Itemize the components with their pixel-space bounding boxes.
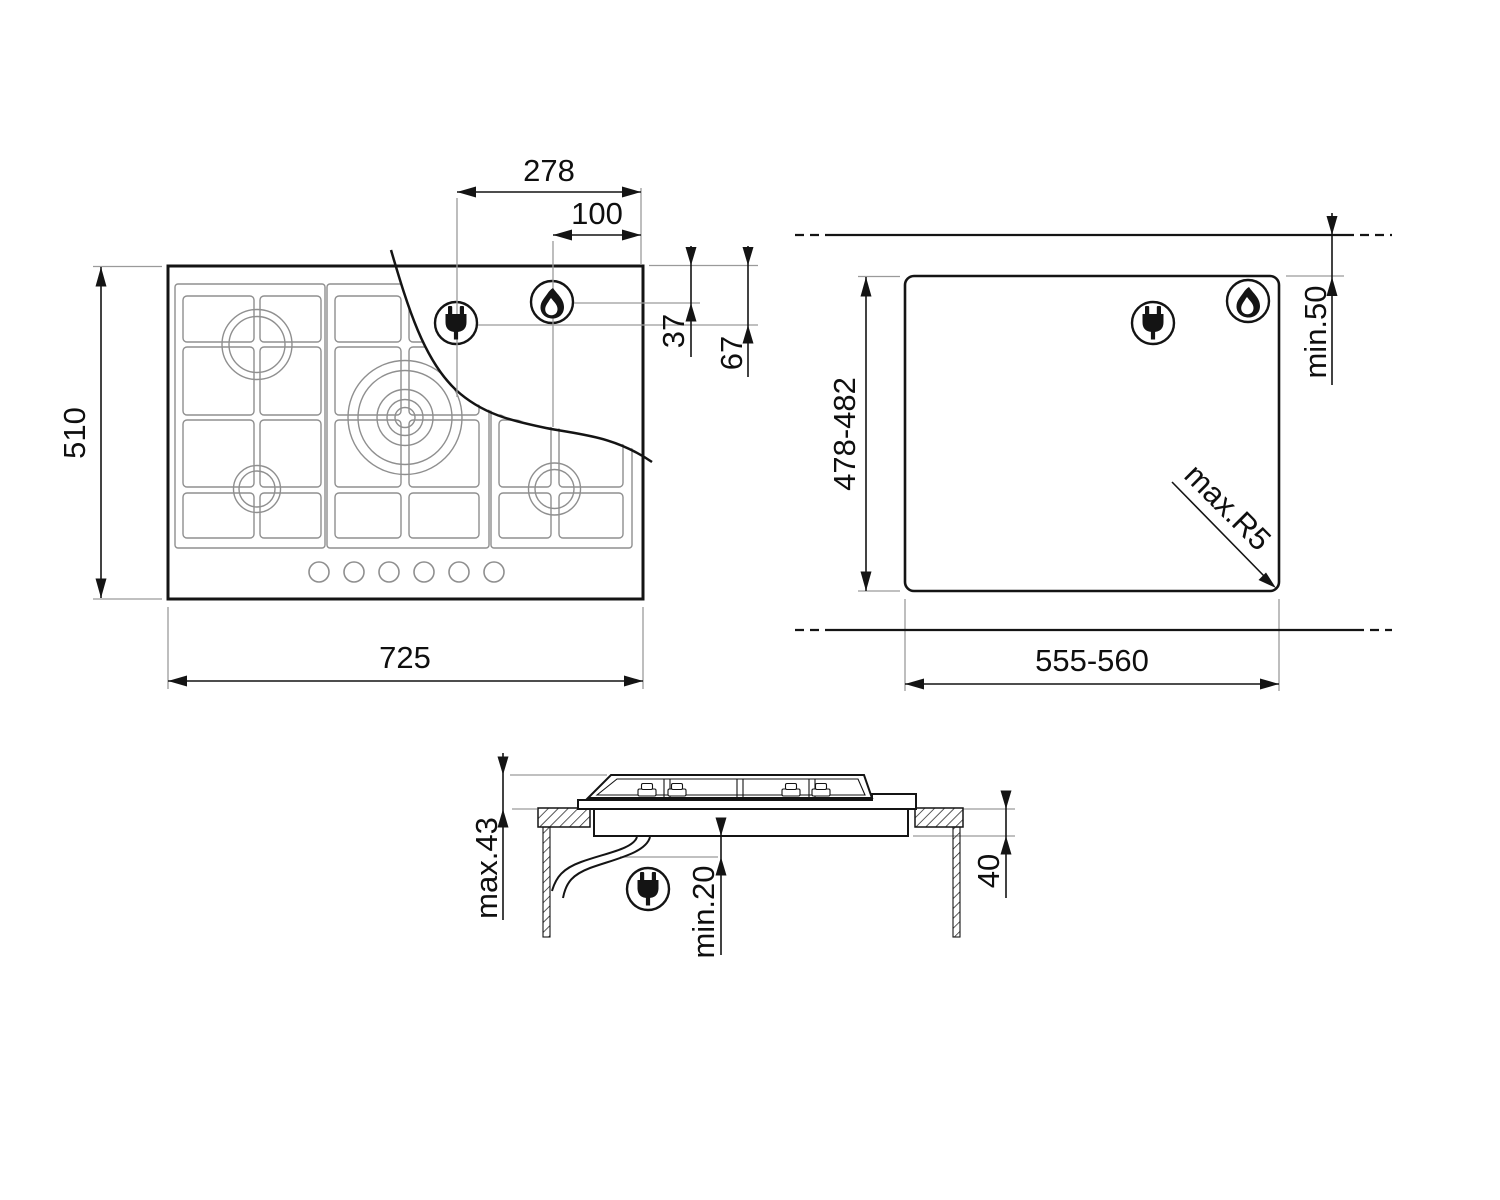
hob-tub [594,809,908,836]
dim-min20-label: min.20 [686,865,721,958]
dim-510-label: 510 [57,407,92,459]
dim-725-label: 725 [379,640,431,675]
dim-40-label: 40 [971,854,1006,888]
dim-max43: max.43 [469,753,509,920]
dim-37: 37 [656,246,697,357]
dim-37-label: 37 [656,314,691,348]
cutout-outline [905,276,1279,591]
installation-diagram: 278 100 37 67 510 [0,0,1500,1200]
dim-40: 40 [971,791,1012,899]
section-view: max.43 min.20 40 [469,753,1015,959]
dim-725: 725 [168,640,643,687]
dim-278-label: 278 [523,153,575,188]
dim-278: 278 [457,153,641,198]
flame-icon [1227,280,1269,322]
worktop-left-block [538,808,590,827]
dim-min50-label: min.50 [1298,285,1333,378]
dim-478-482: 478-482 [827,277,872,591]
dim-100-label: 100 [571,196,623,231]
dim-510: 510 [57,267,107,598]
cabinet-side-left [543,827,550,937]
dim-max43-label: max.43 [469,817,504,919]
cutout-view: min.50 478-482 max.R5 555-560 [795,213,1392,691]
dim-555-560: 555-560 [905,643,1279,690]
cabinet-side-right [953,827,960,937]
dim-min50: min.50 [1298,213,1338,385]
dim-478-482-label: 478-482 [827,377,862,491]
plug-icon [1132,302,1174,344]
plan-view: 278 100 37 67 510 [57,153,758,689]
dim-67-label: 67 [714,336,749,370]
plug-icon [627,868,669,910]
worktop-right-block [915,808,963,827]
dim-min20: min.20 [686,818,727,959]
dim-555-560-label: 555-560 [1035,643,1149,678]
dim-100: 100 [553,196,641,241]
pan-support-section [588,775,872,798]
